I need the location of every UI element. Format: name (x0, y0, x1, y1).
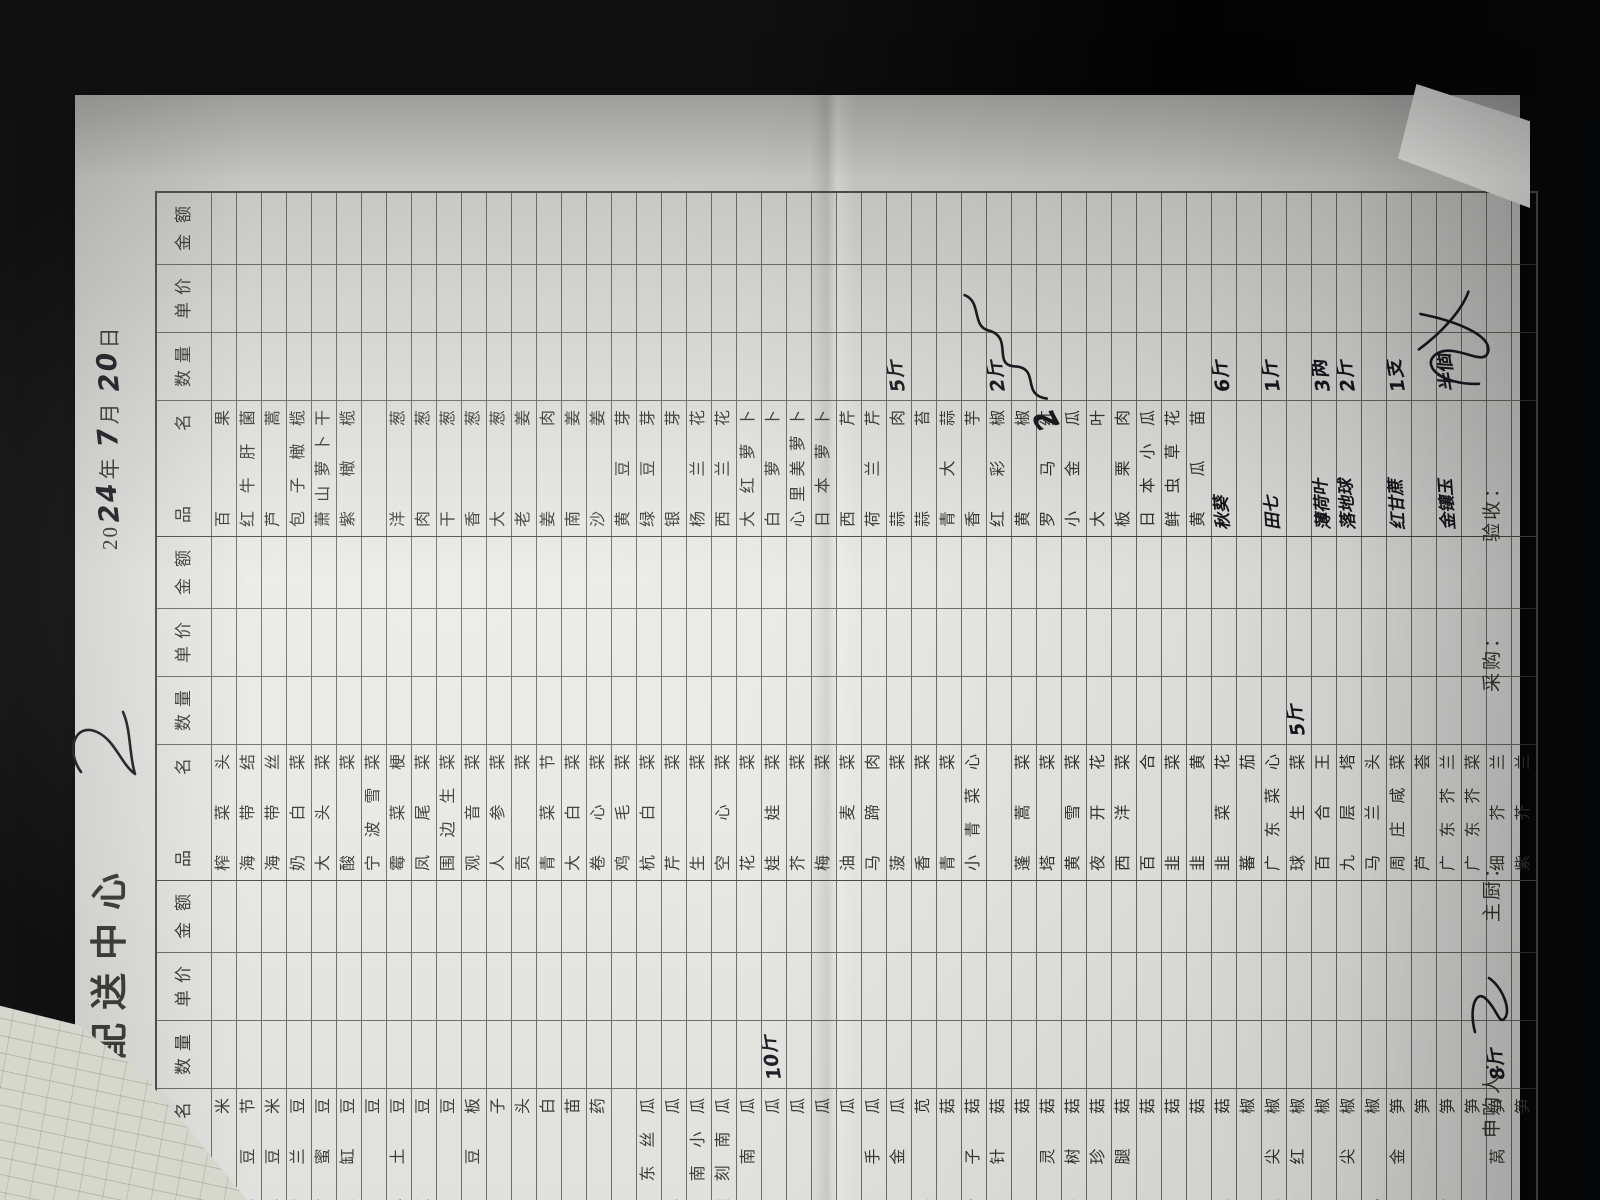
item-row: 大葱 (486, 193, 511, 536)
unit-price-cell (1312, 265, 1336, 333)
amount-cell (1037, 881, 1061, 953)
item-name-text: 小青菜心 (962, 745, 985, 880)
item-name-text: 观音菜 (462, 745, 485, 880)
item-name-cell: 干葱 (437, 401, 461, 536)
item-name-text: 蘑菇 (1162, 1089, 1185, 1200)
unit-price-cell (1187, 609, 1211, 677)
amount-cell (537, 537, 561, 609)
amount-cell (1237, 193, 1261, 265)
amount-cell (587, 537, 611, 609)
item-row: 芹菜 (661, 537, 686, 880)
unit-price-cell (787, 609, 811, 677)
item-row: 芦荟 (1411, 537, 1436, 880)
amount-cell (1187, 193, 1211, 265)
footer-label-0: 申购人： (1477, 1050, 1504, 1138)
item-row: 青菜 (936, 537, 961, 880)
quantity-cell (662, 333, 686, 401)
item-name-text: 大叶 (1087, 401, 1110, 536)
item-name-cell: 黄金瓜 (887, 1089, 911, 1200)
item-row: 甜蜜豆 (311, 881, 336, 1200)
item-name-text: 茭白 (537, 1089, 560, 1200)
item-name-cell: 菠菜 (887, 745, 911, 880)
item-name-cell: 秋葵 (1212, 401, 1236, 536)
unit-price-cell (512, 265, 536, 333)
item-name-cell: 山药 (587, 1089, 611, 1200)
item-name-text: 甜蜜豆 (312, 1089, 335, 1200)
quantity-cell (912, 677, 936, 745)
item-name-text: 青椒 (1312, 1089, 1335, 1200)
item-name-text: 马兰头 (1362, 745, 1385, 880)
quantity-cell (562, 333, 586, 401)
unit-price-cell (262, 265, 286, 333)
item-row: 小金瓜 (1061, 193, 1086, 536)
handwritten-quantity: 5斤 (1287, 702, 1310, 745)
quantity-cell (487, 333, 511, 401)
unit-price-cell (1212, 953, 1236, 1021)
unit-price-cell (1387, 609, 1411, 677)
quantity-cell (212, 1021, 236, 1089)
item-name-cell: 茶树菇 (1062, 1089, 1086, 1200)
item-name-cell: 黄椒 (1237, 1089, 1261, 1200)
quantity-cell (437, 333, 461, 401)
amount-cell (362, 881, 386, 953)
item-name-cell: 绿豆芽 (637, 401, 661, 536)
item-row: 马兰头 (1361, 537, 1386, 880)
unit-price-cell (1337, 953, 1361, 1021)
quantity-cell (1137, 677, 1161, 745)
item-name-text: 韭菜 (1162, 745, 1185, 880)
item-row: 洋葱 (386, 193, 411, 536)
item-name-cell: 心里美萝卜 (787, 401, 811, 536)
item-name-cell: 榨菜头 (212, 745, 236, 880)
item-name-text: 广东丝瓜 (637, 1089, 660, 1200)
unit-price-cell (687, 265, 711, 333)
unit-price-cell (937, 953, 961, 1021)
unit-price-cell (612, 265, 636, 333)
item-name-text: 茶树菇 (1062, 1089, 1085, 1200)
unit-price-cell (812, 953, 836, 1021)
item-row: 杨兰花 (686, 193, 711, 536)
item-name-cell: 金针菇 (987, 1089, 1011, 1200)
unit-price-cell (1012, 953, 1036, 1021)
unit-price-cell (337, 953, 361, 1021)
item-row (1286, 193, 1311, 536)
item-row: 刀豆 (436, 881, 461, 1200)
item-name-text: 大葱 (487, 401, 510, 536)
amount-cell (637, 193, 661, 265)
item-name-text: 香菜 (912, 745, 935, 880)
item-row: 油麦菜 (836, 537, 861, 880)
item-row: 草菇 (1186, 881, 1211, 1200)
item-name-text: 毛豆米 (262, 1089, 285, 1200)
item-name-cell: 金镶玉 (1437, 401, 1461, 536)
unit-price-cell (612, 953, 636, 1021)
amount-cell (337, 193, 361, 265)
unit-price-cell (662, 953, 686, 1021)
quantity-cell (1212, 677, 1236, 745)
item-row (1236, 193, 1261, 536)
item-name-text: 梅菜 (812, 745, 835, 880)
item-name-text: 鲜虫草花 (1162, 401, 1185, 536)
quantity-cell (1312, 677, 1336, 745)
amount-cell (1387, 193, 1411, 265)
item-name-text: 青菜节 (537, 745, 560, 880)
item-row: 黄豆芽 (611, 193, 636, 536)
item-row: 银芽 (661, 193, 686, 536)
item-name-cell: 香菇 (1137, 1089, 1161, 1200)
quantity-cell (662, 677, 686, 745)
photo-stage: 蔬菜配送中心 2024年 7月 20日 品 名数 量单 价金 额玉米毛豆节毛豆米… (0, 0, 1600, 1200)
quantity-cell (1112, 677, 1136, 745)
quantity-cell (1437, 677, 1461, 745)
amount-cell (1112, 193, 1136, 265)
date-year-handwritten: 24 (91, 480, 126, 525)
amount-cell (887, 881, 911, 953)
item-row: 佛手瓜 (861, 881, 886, 1200)
item-name-text: 金镶玉 (1437, 478, 1461, 536)
amount-cell (1212, 881, 1236, 953)
item-name-text: 绿豆芽 (637, 401, 660, 536)
quantity-cell (1137, 1021, 1161, 1089)
item-row: 霉菜梗 (386, 537, 411, 880)
item-name-cell: 周庄咸菜 (1387, 745, 1411, 880)
item-name-cell: 大红萝卜 (737, 401, 761, 536)
amount-cell (1237, 881, 1261, 953)
amount-cell (512, 537, 536, 609)
unit-price-cell (1512, 953, 1536, 1021)
item-name-cell (1287, 401, 1311, 536)
handwritten-quantity: 1斤 (1262, 358, 1285, 401)
unit-price-cell (237, 953, 261, 1021)
item-row: 榨菜头 (211, 537, 236, 880)
quantity-cell (862, 333, 886, 401)
amount-cell (912, 537, 936, 609)
quantity-cell (287, 1021, 311, 1089)
amount-cell (1062, 193, 1086, 265)
item-name-text: 草头 (512, 1089, 535, 1200)
quantity-cell (1187, 677, 1211, 745)
item-row: 金针菇 (986, 881, 1011, 1200)
quantity-cell (762, 677, 786, 745)
amount-cell (1162, 537, 1186, 609)
item-name-text: 香菇 (937, 1089, 960, 1200)
unit-price-cell (1312, 609, 1336, 677)
quantity-cell (537, 677, 561, 745)
unit-price-cell (687, 953, 711, 1021)
unit-price-cell (1162, 609, 1186, 677)
amount-cell (787, 193, 811, 265)
amount-cell (912, 881, 936, 953)
unit-price-cell (1362, 953, 1386, 1021)
amount-cell (437, 193, 461, 265)
amount-cell (987, 537, 1011, 609)
quantity-cell (912, 1021, 936, 1089)
quantity-cell (1512, 1021, 1536, 1089)
amount-cell (1087, 193, 1111, 265)
item-name-text: 金针菇 (987, 1089, 1010, 1200)
item-name-cell: 百合 (1137, 745, 1161, 880)
amount-cell (1387, 881, 1411, 953)
amount-cell (1337, 881, 1361, 953)
item-name-cell: 酸缸豆 (337, 1089, 361, 1200)
amount-cell (862, 881, 886, 953)
unit-price-cell (1437, 953, 1461, 1021)
amount-cell (512, 881, 536, 953)
item-row: 黄金笋 (1386, 881, 1411, 1200)
item-row: 土豆 (361, 881, 386, 1200)
item-row: 蕃茄 (1236, 537, 1261, 880)
item-name-cell: 韭菜 (1162, 745, 1186, 880)
quantity-cell (462, 1021, 486, 1089)
item-name-text: 大白菜 (562, 745, 585, 880)
item-row: 西洋菜 (1111, 537, 1136, 880)
quantity-cell (1287, 333, 1311, 401)
amount-cell (262, 193, 286, 265)
item-row: 草头 (511, 881, 536, 1200)
item-row: 香芋 (961, 193, 986, 536)
item-name-cell: 夜开花 (1087, 745, 1111, 880)
item-name-cell: 生菜 (687, 745, 711, 880)
quantity-cell (787, 1021, 811, 1089)
item-name-text: 板栗肉 (1112, 401, 1135, 536)
item-name-cell: 海带丝 (262, 745, 286, 880)
unit-price-cell (562, 953, 586, 1021)
quantity-cell (512, 677, 536, 745)
item-name-cell: 紫橄榄 (337, 401, 361, 536)
item-row: 姜肉 (536, 193, 561, 536)
amount-cell (687, 193, 711, 265)
item-name-text: 菠菜 (887, 745, 910, 880)
unit-price-cell (1262, 953, 1286, 1021)
item-name-cell: 广东芥兰 (1437, 745, 1461, 880)
item-name-cell: 南姜 (562, 401, 586, 536)
amount-cell (1412, 193, 1436, 265)
unit-price-cell (212, 609, 236, 677)
quantity-cell (1062, 333, 1086, 401)
unit-price-cell (412, 609, 436, 677)
item-name-cell: 大头菜 (312, 745, 336, 880)
item-name-text: 凤尾菜 (412, 745, 435, 880)
item-name-cell: 杭椒 (1362, 1089, 1386, 1200)
item-name-text: 黄椒 (1237, 1089, 1260, 1200)
unit-price-cell (287, 265, 311, 333)
item-name-text: 奶白菜 (287, 745, 310, 880)
amount-cell (1362, 537, 1386, 609)
unit-price-cell (662, 265, 686, 333)
item-row: 竹笋 (1436, 881, 1461, 1200)
amount-cell (337, 537, 361, 609)
item-name-cell: 蘑菇 (1162, 1089, 1186, 1200)
unit-price-cell (737, 609, 761, 677)
item-name-cell: 肉葱 (412, 401, 436, 536)
unit-price-cell (712, 953, 736, 1021)
amount-cell (412, 193, 436, 265)
item-name-cell: 贡菜 (512, 745, 536, 880)
amount-cell (412, 881, 436, 953)
item-name-cell: 红彩椒 (987, 401, 1011, 536)
quantity-cell: 3两 (1312, 333, 1336, 401)
item-name-cell: 马蹄肉 (862, 745, 886, 880)
quantity-cell (1112, 1021, 1136, 1089)
amount-cell (512, 193, 536, 265)
quantity-cell (587, 1021, 611, 1089)
quantity-cell (537, 1021, 561, 1089)
item-row: 茭白 (536, 881, 561, 1200)
item-name-cell: 奶白菜 (287, 745, 311, 880)
item-name-cell: 秀珍菇 (1087, 1089, 1111, 1200)
amount-cell (937, 193, 961, 265)
footer-label-3: 验收： (1477, 476, 1504, 542)
unit-price-cell (1412, 953, 1436, 1021)
amount-cell (1287, 537, 1311, 609)
unit-price-cell (312, 953, 336, 1021)
item-name-text: 贡菜 (512, 745, 535, 880)
item-name-text: 红牛肝菌 (237, 401, 260, 536)
unit-price-cell (287, 953, 311, 1021)
item-name-text: 芥菜 (787, 745, 810, 880)
item-name-cell: 芹菜 (662, 745, 686, 880)
item-row: 大头菜 (311, 537, 336, 880)
amount-cell (1312, 193, 1336, 265)
amount-cell (1487, 537, 1511, 609)
item-name-cell: 荷兰豆 (287, 1089, 311, 1200)
item-name-cell: 人参菜 (487, 745, 511, 880)
item-row: 百合 (1136, 537, 1161, 880)
item-name-text: 雕刻南瓜 (712, 1089, 735, 1200)
requester-signature-scribble (1467, 968, 1509, 1040)
amount-cell (1337, 537, 1361, 609)
item-name-text: 薄荷叶 (1312, 478, 1336, 536)
item-row: 球生菜5斤 (1286, 537, 1311, 880)
unit-price-cell (762, 265, 786, 333)
quantity-cell (712, 677, 736, 745)
item-name-cell: 鲜虫草花 (1162, 401, 1186, 536)
item-row: 玉米 (211, 881, 236, 1200)
item-name-cell: 青菜节 (537, 745, 561, 880)
amount-cell (687, 537, 711, 609)
item-name-cell: 甜蜜豆 (312, 1089, 336, 1200)
column-header: 数 量 (157, 677, 211, 745)
unit-price-cell (1112, 609, 1136, 677)
amount-cell (862, 537, 886, 609)
item-name-cell: 大叶 (1087, 401, 1111, 536)
item-row: 酸菜 (336, 537, 361, 880)
amount-cell (1462, 193, 1486, 265)
item-row: 韭黄 (1186, 537, 1211, 880)
item-name-cell: 姜肉 (537, 401, 561, 536)
item-name-text: 百果 (212, 401, 235, 536)
item-row: 广东丝瓜 (636, 881, 661, 1200)
item-name-cell: 花菜 (737, 745, 761, 880)
item-name-cell: 板栗肉 (1112, 401, 1136, 536)
unit-price-cell (887, 953, 911, 1021)
item-row: 毛豆米 (261, 881, 286, 1200)
amount-cell (837, 881, 861, 953)
unit-price-cell (912, 265, 936, 333)
amount-cell (1187, 881, 1211, 953)
unit-price-cell (212, 953, 236, 1021)
item-name-cell: 红牛肝菌 (237, 401, 261, 536)
unit-price-cell (837, 953, 861, 1021)
quantity-cell (762, 333, 786, 401)
quantity-cell (662, 1021, 686, 1089)
item-name-text: 夜开花 (1087, 745, 1110, 880)
item-name-cell: 雕刻南瓜 (712, 1089, 736, 1200)
amount-cell (787, 881, 811, 953)
item-row: 百果 (211, 193, 236, 536)
amount-cell (887, 537, 911, 609)
item-row: 红牛肝菌 (236, 193, 261, 536)
item-name-cell: 蕃茄 (1237, 745, 1261, 880)
quantity-cell (462, 333, 486, 401)
quantity-cell (287, 677, 311, 745)
amount-cell (987, 193, 1011, 265)
item-name-text: 水笋 (1512, 1089, 1535, 1200)
unit-price-cell (487, 609, 511, 677)
item-row: 干葱 (436, 193, 461, 536)
item-row: 百合王 (1311, 537, 1336, 880)
column-header: 金 额 (157, 881, 211, 953)
quantity-cell (412, 1021, 436, 1089)
quantity-cell (1187, 333, 1211, 401)
unit-price-cell (362, 265, 386, 333)
item-row: 广东芥菜 (1461, 537, 1486, 880)
amount-cell (387, 537, 411, 609)
item-name-cell: 滑子菇 (962, 1089, 986, 1200)
amount-cell (687, 881, 711, 953)
item-name-cell: 老姜 (512, 401, 536, 536)
item-row: 山药 (586, 881, 611, 1200)
item-row: 青菜节 (536, 537, 561, 880)
item-name-text: 洋葱 (387, 401, 410, 536)
item-name-cell: 卷心菜 (587, 745, 611, 880)
item-name-cell: 米苋 (912, 1089, 936, 1200)
quantity-cell (1012, 677, 1036, 745)
item-row: 滑子菇 (961, 881, 986, 1200)
unit-price-cell (1237, 609, 1261, 677)
item-row: 冬笋 (1411, 881, 1436, 1200)
item-row: 藕 (611, 881, 636, 1200)
quantity-cell (487, 677, 511, 745)
item-name-cell: 毛豆米 (262, 1089, 286, 1200)
amount-cell (462, 537, 486, 609)
amount-cell (312, 881, 336, 953)
unit-price-cell (462, 609, 486, 677)
unit-price-cell (1112, 953, 1136, 1021)
amount-cell (1212, 193, 1236, 265)
item-name-text: 大红萝卜 (737, 401, 760, 536)
item-name-text: 小土豆 (387, 1089, 410, 1200)
amount-cell (1362, 193, 1386, 265)
item-name-text: 日本小瓜 (1137, 401, 1160, 536)
item-name-text: 滑子菇 (962, 1089, 985, 1200)
handwritten-quantity: 5斤 (887, 358, 910, 401)
amount-cell (987, 881, 1011, 953)
unit-price-cell (337, 609, 361, 677)
item-row: 黄瓜10斤 (761, 881, 786, 1200)
item-name-text: 萧山萝卜干 (312, 401, 335, 536)
item-name-cell: 藕 (612, 1089, 636, 1200)
item-name-cell: 日本萝卜 (812, 401, 836, 536)
amount-cell (1137, 881, 1161, 953)
date-day-label: 日 (98, 326, 122, 349)
unit-price-cell (1162, 953, 1186, 1021)
item-name-cell: 白灵菇 (1037, 1089, 1061, 1200)
quantity-cell (562, 677, 586, 745)
amount-cell (737, 537, 761, 609)
item-name-cell: 冬笋 (1412, 1089, 1436, 1200)
item-row: 水笋 (1511, 881, 1536, 1200)
